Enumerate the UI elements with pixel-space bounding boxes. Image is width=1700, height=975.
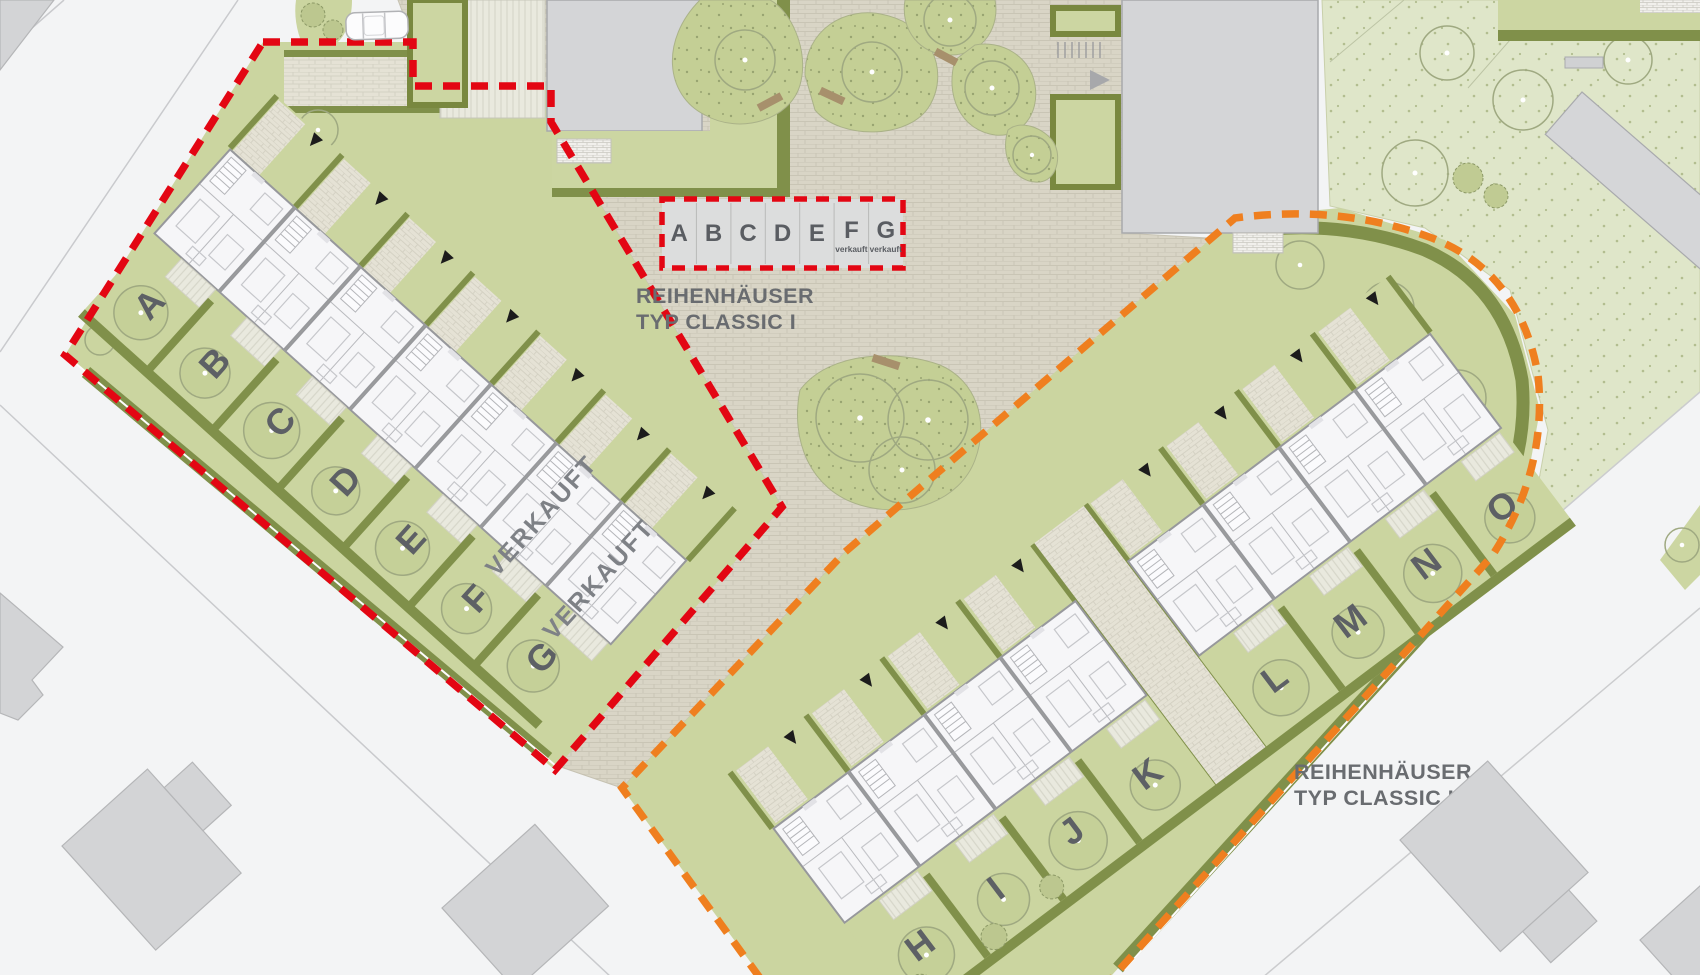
- legend-unit-label: A: [671, 220, 688, 247]
- title-classic2-line1: REIHENHÄUSER: [1294, 760, 1472, 784]
- northeast-terrace-strip: [1498, 0, 1700, 41]
- site-plan: A B C D E F G VERKAUFT VERKAUFT: [0, 0, 1700, 975]
- title-classic1-line1: REIHENHÄUSER: [636, 284, 814, 308]
- legend-unit-label: F: [844, 217, 859, 244]
- title-classic1-line2: TYP CLASSIC I: [636, 310, 796, 334]
- legend-unit-status: verkauft: [870, 244, 903, 254]
- legend-unit-label: B: [705, 220, 722, 247]
- title-classic2-line2: TYP CLASSIC II: [1294, 786, 1461, 810]
- site-plan-page: A B C D E F G VERKAUFT VERKAUFT: [0, 0, 1700, 975]
- legend-unit-label: G: [876, 217, 895, 244]
- utility-pad: [1565, 57, 1603, 68]
- parked-car: [346, 11, 409, 40]
- legend-unit-label: C: [739, 220, 756, 247]
- legend-unit-label: D: [774, 220, 791, 247]
- legend: A B C D E F G verkauft verkauft: [662, 199, 903, 268]
- legend-unit-label: E: [809, 220, 825, 247]
- legend-unit-status: verkauft: [835, 244, 868, 254]
